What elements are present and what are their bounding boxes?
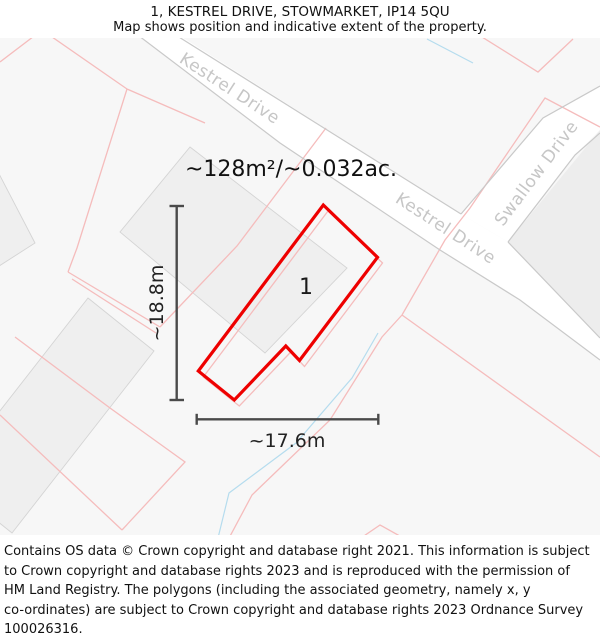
property-map: Kestrel Drive Kestrel Drive Swallow Driv… <box>0 38 600 535</box>
plot-number-label: 1 <box>299 275 313 300</box>
footer-line: to Crown copyright and database rights 2… <box>4 562 596 582</box>
map-header: 1, KESTREL DRIVE, STOWMARKET, IP14 5QU M… <box>0 0 600 38</box>
footer-line: HM Land Registry. The polygons (includin… <box>4 581 596 601</box>
footer-line: 100026316. <box>4 620 596 640</box>
height-dimension-label: ~18.8m <box>146 265 168 342</box>
page-title: 1, KESTREL DRIVE, STOWMARKET, IP14 5QU <box>0 4 600 20</box>
area-label: ~128m²/~0.032ac. <box>185 157 397 182</box>
width-dimension-label: ~17.6m <box>249 430 326 452</box>
footer-line: Contains OS data © Crown copyright and d… <box>4 542 596 562</box>
page-subtitle: Map shows position and indicative extent… <box>0 20 600 36</box>
footer-line: co-ordinates) are subject to Crown copyr… <box>4 601 596 621</box>
copyright-footer: Contains OS data © Crown copyright and d… <box>0 535 600 625</box>
map-canvas: Kestrel Drive Kestrel Drive Swallow Driv… <box>0 38 600 535</box>
